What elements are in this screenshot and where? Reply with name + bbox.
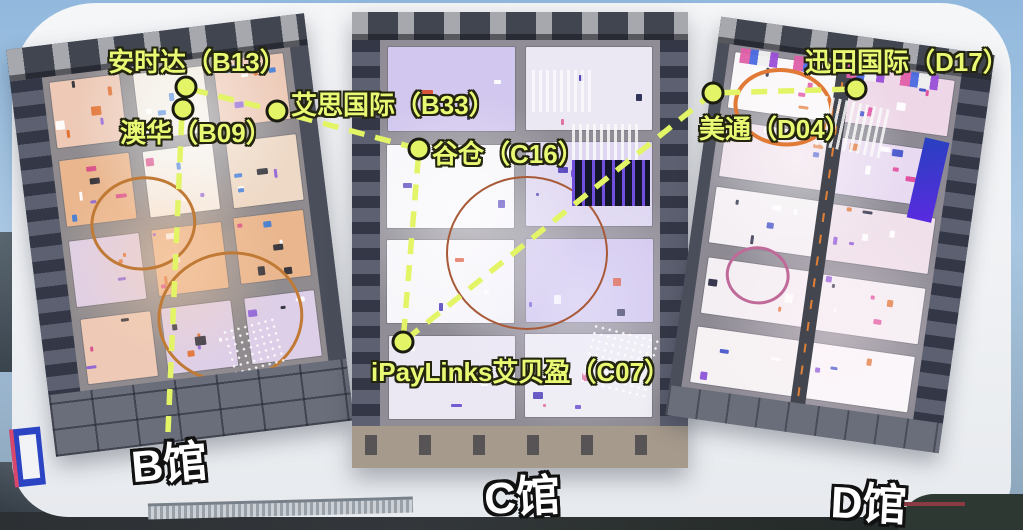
booth-accent (832, 284, 836, 288)
booth-accent (451, 404, 462, 407)
booth-block (50, 74, 127, 148)
booth-accent (793, 209, 797, 215)
booth-block (80, 311, 157, 385)
booth-accent (575, 405, 581, 409)
booth-accent (169, 93, 175, 102)
booth-accent (865, 165, 871, 175)
booth-accent (892, 149, 904, 157)
booth-accent (234, 173, 242, 178)
booth-accent (72, 214, 78, 222)
booth-accent (90, 346, 94, 351)
hall-b-floor (42, 47, 329, 391)
booth-accent (234, 102, 244, 109)
booth-accent (263, 221, 272, 228)
booth-accent (561, 119, 564, 125)
booth-label-b33[interactable]: 艾思国际（B33） (291, 85, 495, 122)
booth-accent (833, 237, 838, 245)
booth-accent (778, 306, 782, 311)
booth-accent (176, 162, 181, 169)
booth-accent (784, 293, 793, 303)
booth-accent (617, 309, 625, 316)
booth-block (815, 274, 925, 344)
booth-accent (273, 244, 284, 251)
booth-accent (700, 371, 708, 380)
hall-c-building (352, 12, 688, 468)
booth-accent (636, 94, 642, 101)
booth-label-c16[interactable]: 谷仓（C16） (432, 134, 584, 171)
hall-c-roof (352, 12, 688, 40)
booth-accent (896, 102, 906, 111)
booth-accent (720, 349, 729, 354)
booth-accent (439, 303, 443, 311)
booth-accent (79, 191, 83, 200)
booth-label-d04[interactable]: 美通（D04） (699, 109, 851, 146)
booth-accent (873, 319, 882, 325)
booth-accent (813, 152, 820, 158)
booth-accent (273, 169, 277, 178)
booth-accent (830, 366, 837, 370)
booth-accent (613, 278, 621, 286)
booth-accent (120, 318, 128, 322)
booth-accent (86, 166, 97, 172)
red-track-strip (903, 502, 965, 506)
booth-accent (405, 346, 415, 351)
booth-accent (887, 299, 894, 307)
booth-accent (834, 308, 838, 312)
booth-accent (862, 210, 872, 214)
entrance-gate-graphic (9, 427, 46, 488)
booth-label-d17[interactable]: 迅田国际（D17） (805, 42, 1009, 79)
booth-accent (766, 222, 774, 229)
booth-label-c07[interactable]: iPayLinks艾贝盈（C07） (371, 352, 670, 389)
booth-accent (826, 276, 833, 283)
booth-accent (117, 277, 125, 281)
booth-accent (494, 80, 501, 84)
booth-accent (101, 118, 105, 125)
booth-accent (847, 207, 853, 212)
booth-accent (849, 242, 854, 246)
booth-accent (543, 404, 546, 407)
booth-accent (237, 223, 242, 228)
booth-block (690, 326, 800, 396)
booth-accent (403, 183, 412, 188)
hall-label-c: C馆 (482, 459, 561, 527)
booth-accent (67, 130, 71, 138)
hall-label-b: B馆 (128, 425, 209, 495)
booth-accent (86, 365, 96, 369)
booth-accent (771, 357, 781, 361)
booth-accent (772, 205, 782, 211)
booth-accent (146, 157, 155, 166)
booth-accent (89, 177, 100, 184)
booth-block (805, 342, 915, 412)
booth-accent (108, 86, 113, 95)
booth-accent (871, 295, 876, 300)
hall-c-seating-rows (532, 70, 592, 112)
booth-accent (200, 193, 204, 197)
booth-label-b09[interactable]: 澳华（B09） (120, 113, 272, 150)
hall-b-building (6, 13, 354, 457)
booth-accent (862, 234, 869, 242)
booth-accent (750, 235, 754, 244)
booth-accent (866, 358, 872, 366)
booth-accent (735, 200, 739, 205)
booth-accent (815, 367, 821, 373)
grounds-bottom-right (898, 494, 1023, 530)
booth-accent (893, 167, 899, 172)
booth-accent (925, 90, 929, 96)
booth-accent (238, 188, 244, 193)
hall-label-d: D馆 (829, 466, 908, 530)
hall-d-building (665, 17, 994, 453)
booth-accent (708, 278, 718, 286)
booth-accent (533, 392, 543, 399)
hall-d-floor (681, 44, 961, 419)
booth-accent (91, 106, 102, 116)
venue-map: 安时达（B13） 澳华（B09） 艾思国际（B33） 谷仓（C16） iPayL… (0, 0, 1023, 530)
booth-label-b13[interactable]: 安时达（B13） (108, 42, 286, 79)
booth-accent (72, 81, 76, 88)
booth-accent (56, 120, 66, 130)
booth-accent (256, 168, 268, 175)
booth-accent (889, 230, 895, 238)
